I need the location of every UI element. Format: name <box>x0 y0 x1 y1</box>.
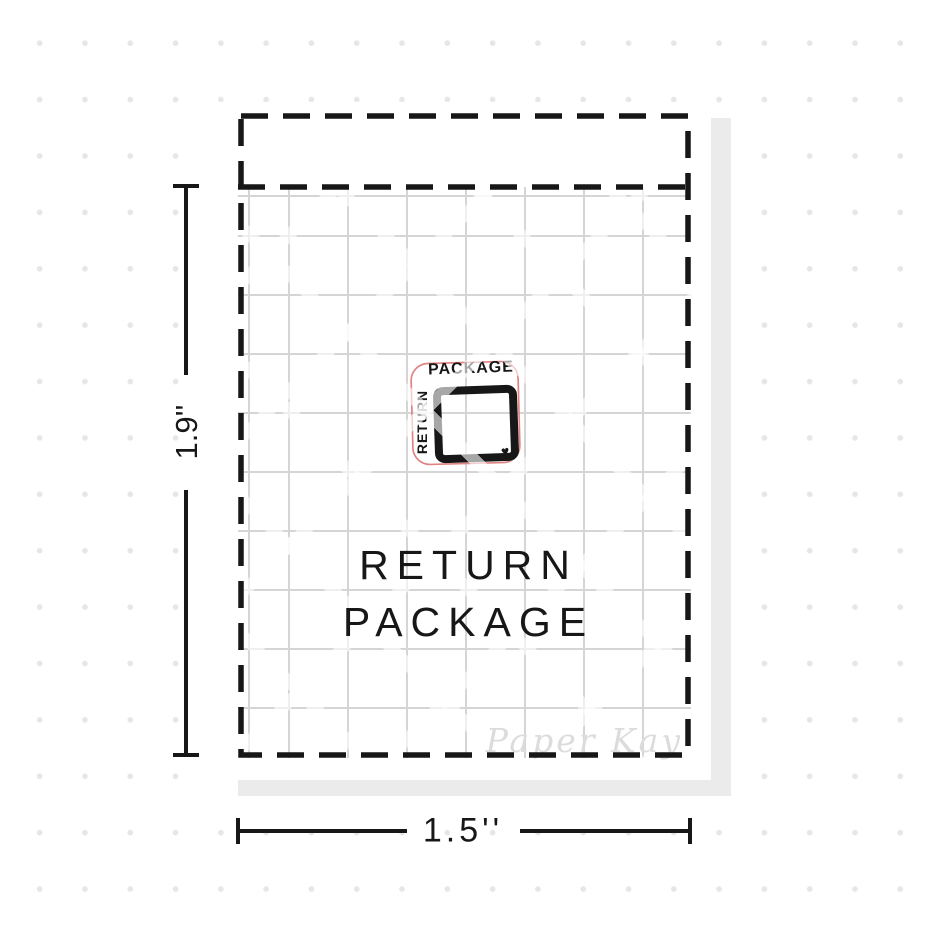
width-dim-line-left <box>238 829 407 833</box>
width-dim-tick-right <box>688 818 692 844</box>
product-image-canvas: { "sheet": { "title_line1": "RETURN", "t… <box>0 0 940 940</box>
height-dim-line-lower <box>184 490 188 757</box>
sticker-sheet-dashed-area: PACKAGE RETURN ♥ RETURN PACKAGE Paper Ka… <box>238 113 691 758</box>
width-dim-label: 1.5'' <box>423 812 503 851</box>
width-dim-line-right <box>520 829 691 833</box>
sheet-dashed-border <box>238 113 691 758</box>
height-dim-line-upper <box>184 186 188 375</box>
height-dim-label: 1.9'' <box>169 405 205 460</box>
height-dim-tick-bottom <box>173 753 199 757</box>
